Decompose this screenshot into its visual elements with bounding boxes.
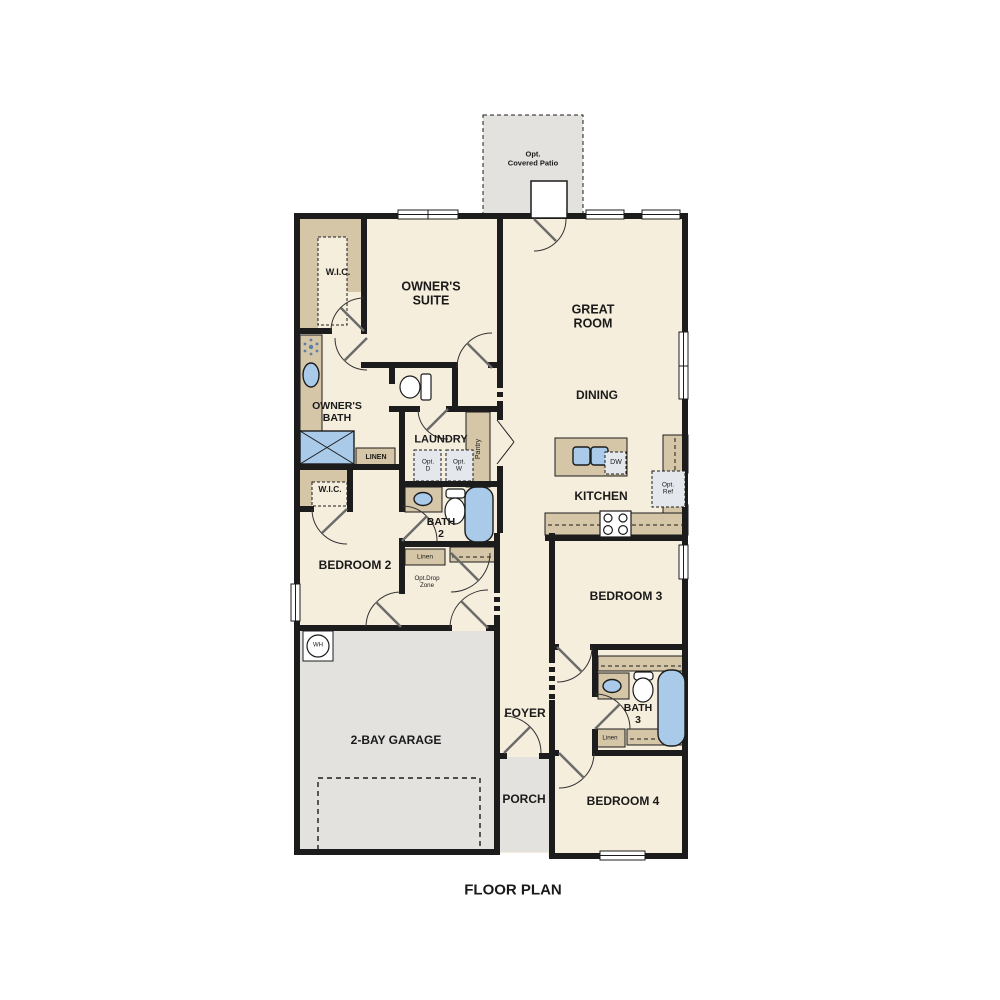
label-linen-bath3: Linen	[602, 734, 617, 741]
window	[679, 545, 688, 579]
bath3-toilet	[633, 672, 653, 702]
room-label-laundry: LAUNDRY	[414, 434, 467, 447]
bath3-sink	[603, 680, 621, 693]
room-label-owners-suite: OWNER'S SUITE	[401, 280, 460, 309]
room-label-dining: DINING	[576, 389, 618, 403]
label-linen-hall: Linen	[417, 553, 433, 560]
owners-toilet	[400, 374, 431, 400]
window	[679, 332, 688, 399]
window	[642, 210, 680, 219]
label-water-heater: WH	[313, 643, 323, 650]
label-opt-fridge: Opt. Ref	[662, 482, 674, 497]
patio-door-frame	[531, 181, 567, 218]
window	[398, 210, 458, 219]
room-label-bedroom4: BEDROOM 4	[587, 795, 660, 809]
room-label-patio: Opt. Covered Patio	[508, 150, 558, 167]
owners-shower	[300, 431, 354, 464]
kitchen-sink-left	[573, 447, 590, 465]
label-drop-zone: Opt.Drop Zone	[414, 575, 439, 589]
bath2-tub	[465, 487, 493, 542]
room-label-owners-bath: OWNER'S BATH	[312, 400, 362, 424]
room-label-foyer: FOYER	[504, 707, 545, 721]
label-opt-washer: Opt. W	[453, 459, 465, 474]
room-label-kitchen: KITCHEN	[574, 490, 627, 504]
room-label-wic-owner: W.I.C.	[326, 267, 351, 277]
label-dishwasher: DW	[610, 459, 622, 467]
room-label-wic-bed2: W.I.C.	[318, 485, 341, 495]
label-linen-owner: LINEN	[366, 454, 387, 462]
bed3-closet	[598, 656, 684, 671]
room-label-porch: PORCH	[502, 793, 545, 807]
room-label-great-room: GREAT ROOM	[572, 303, 615, 332]
stove	[600, 511, 631, 537]
bath2-sink	[414, 493, 432, 506]
window	[600, 851, 645, 860]
label-pantry: Pantry	[475, 439, 483, 459]
wic-owner-rod	[318, 237, 347, 325]
plan-title: FLOOR PLAN	[464, 881, 562, 898]
bath3-tub	[658, 670, 685, 746]
floor-plan-canvas: Opt. Covered Patio W.I.C. OWNER'S SUITE …	[0, 0, 1000, 1000]
owners-bath-sink	[303, 363, 319, 387]
room-label-bath3: BATH 3	[624, 702, 652, 726]
window	[291, 584, 300, 621]
floor-plan-drawing	[0, 0, 1000, 1000]
window	[586, 210, 624, 219]
room-label-bath2: BATH 2	[427, 516, 455, 540]
room-label-garage: 2-BAY GARAGE	[351, 734, 442, 748]
room-label-bedroom3: BEDROOM 3	[590, 590, 663, 604]
room-label-bedroom2: BEDROOM 2	[319, 559, 392, 573]
label-opt-dryer: Opt. D	[422, 459, 434, 474]
